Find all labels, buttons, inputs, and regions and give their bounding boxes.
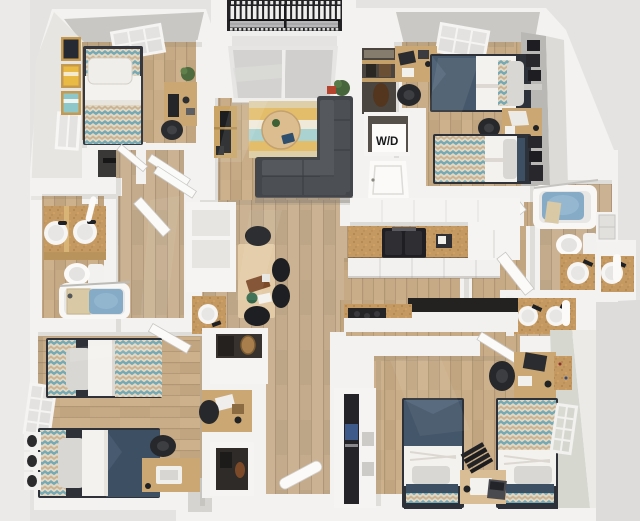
svg-text:W/D: W/D	[376, 136, 398, 148]
